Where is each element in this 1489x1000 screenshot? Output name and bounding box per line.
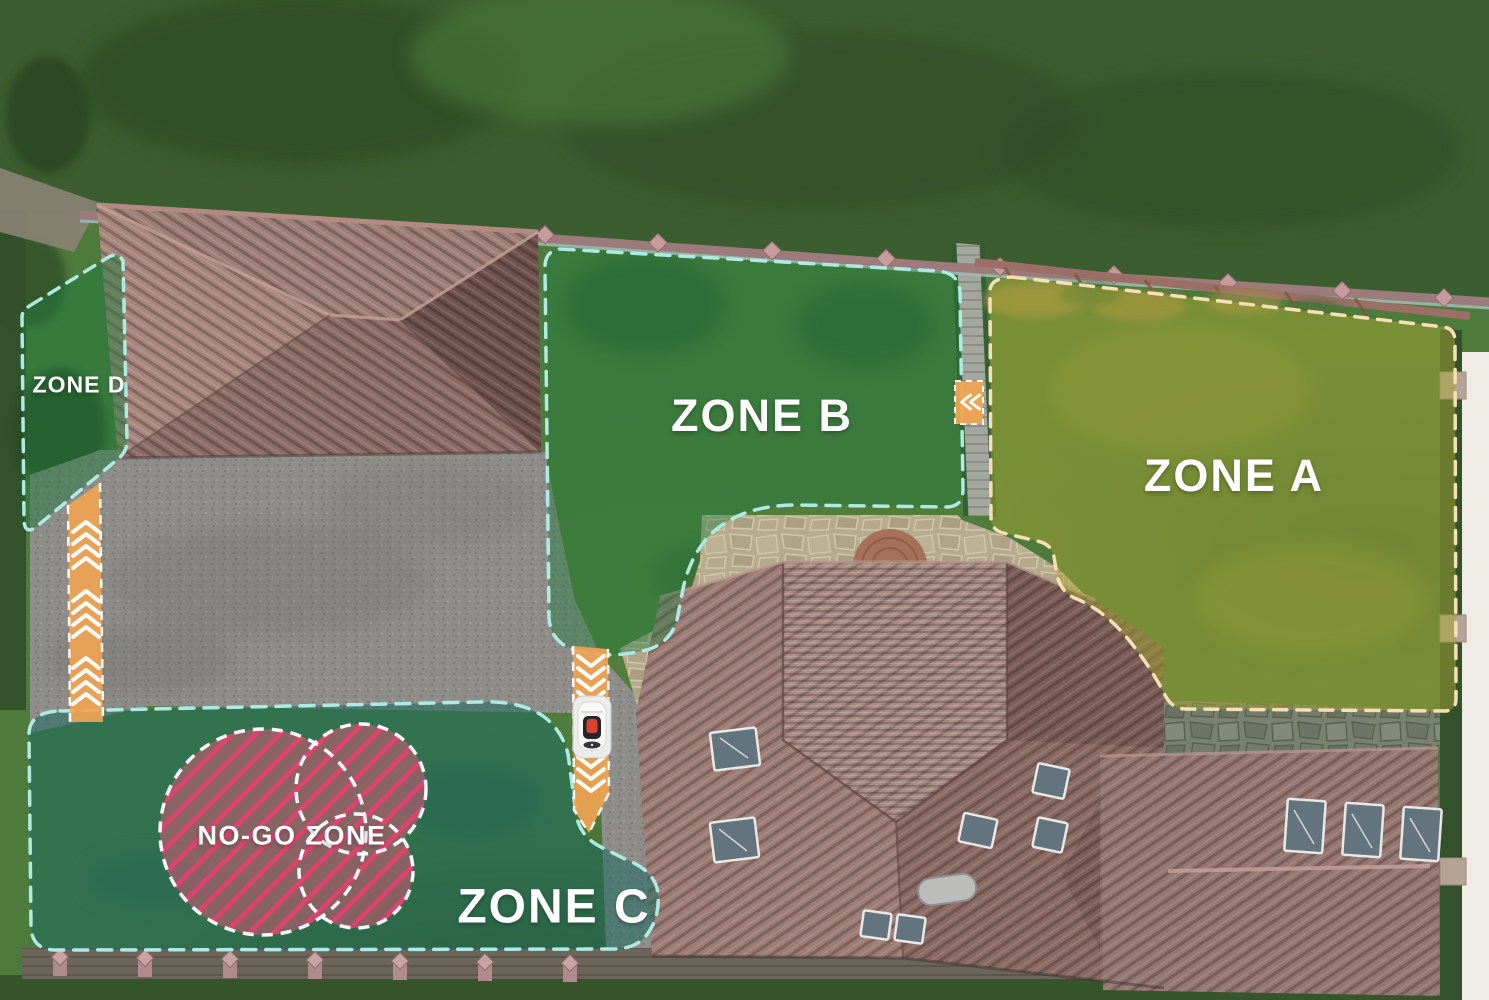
side-passage bbox=[955, 381, 983, 424]
zone-a-label: ZONE A bbox=[1144, 450, 1324, 502]
robot-mower-dock bbox=[573, 696, 611, 759]
no-go-zone-label: NO-GO ZONE bbox=[198, 821, 387, 852]
bush bbox=[6, 57, 90, 173]
zone-c-label: ZONE C bbox=[457, 880, 650, 935]
zone-d-label: ZONE D bbox=[33, 372, 126, 399]
aerial-map: ZONE A ZONE B ZONE C ZONE D NO-GO ZONE c… bbox=[0, 0, 1489, 1000]
zone-b-label: ZONE B bbox=[671, 390, 853, 442]
garage-roof bbox=[90, 195, 550, 470]
left-corridor bbox=[68, 483, 103, 722]
